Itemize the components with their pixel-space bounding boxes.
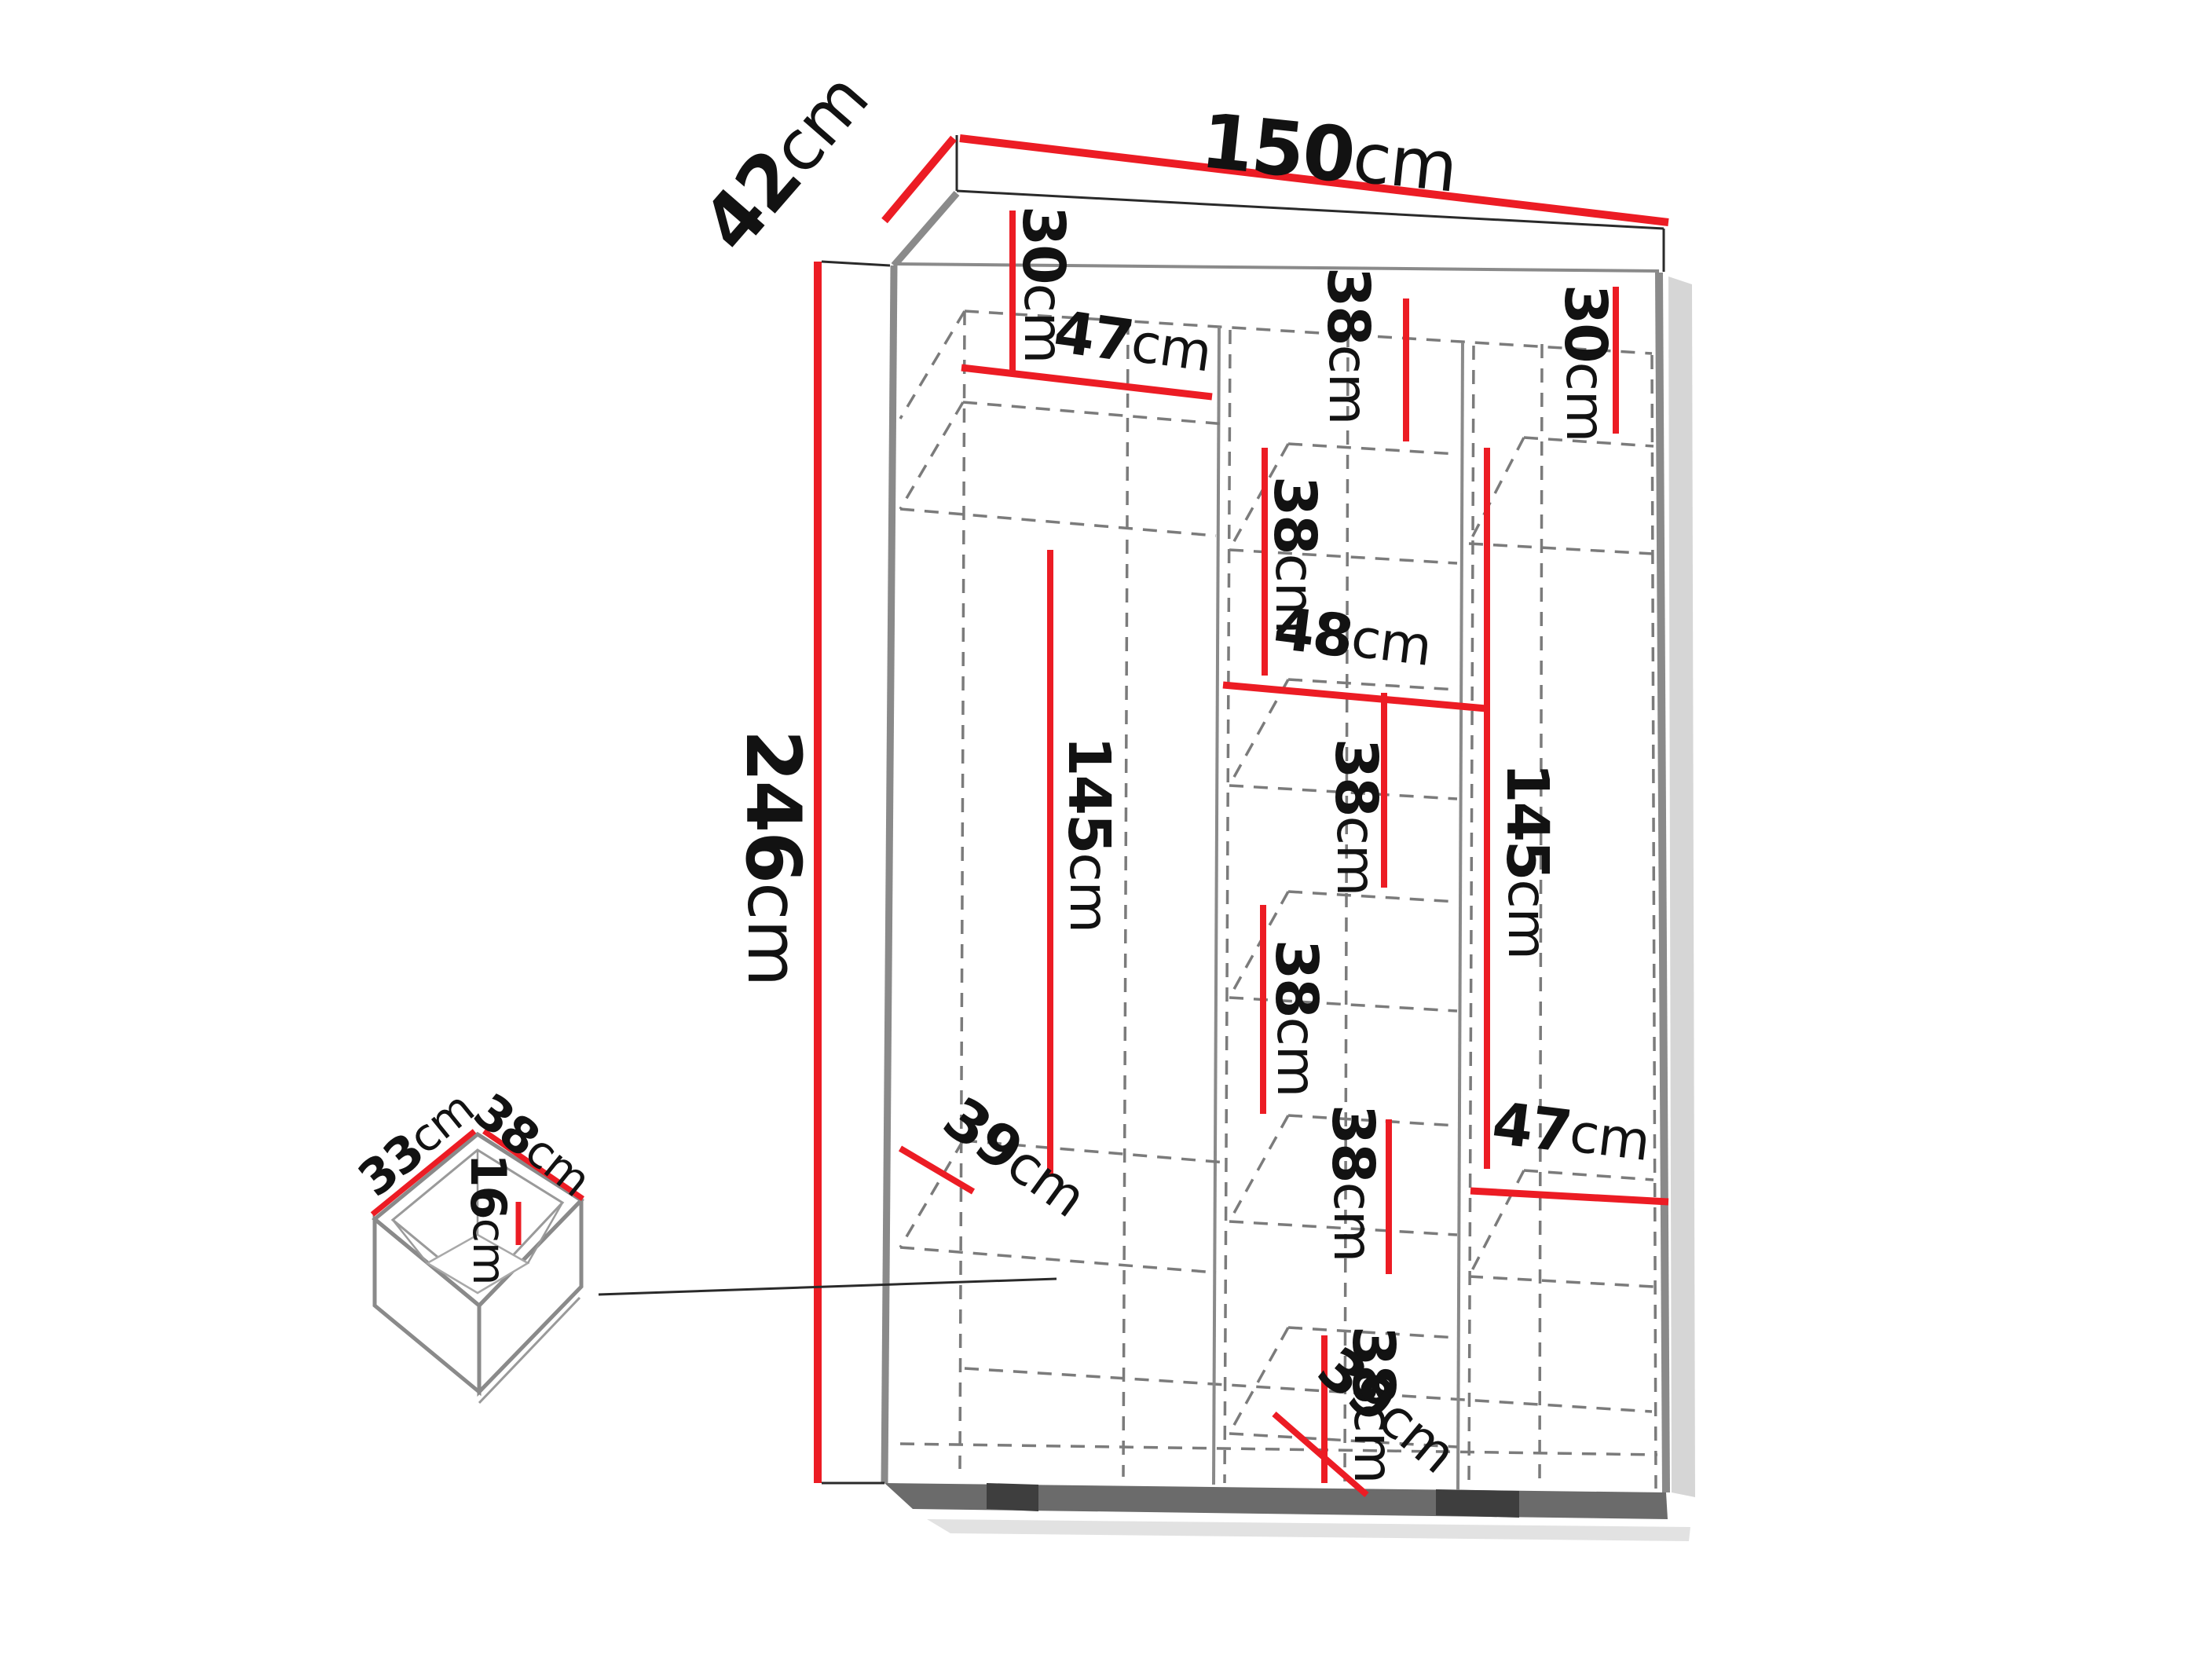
dim-label-mid-38cm-4: 38cm — [1262, 939, 1330, 1097]
wardrobe-dimension-diagram: 150cm 42cm 246cm 30cm 47cm 145cm 39cm 38… — [0, 0, 2212, 1659]
dim-label-mid-38cm-5: 38cm — [1319, 1104, 1386, 1262]
dim-label-mid-38cm-1: 38cm — [1314, 267, 1382, 425]
dim-label-left-145cm: 145cm — [1055, 736, 1122, 932]
dim-label-150cm: 150cm — [1197, 97, 1461, 211]
dim-label-drawer-16cm: 16cm — [460, 1153, 518, 1284]
dim-label-right-30cm: 30cm — [1551, 284, 1619, 442]
dim-label-right-145cm: 145cm — [1493, 763, 1561, 959]
diagram-page: 150cm 42cm 246cm 30cm 47cm 145cm 39cm 38… — [0, 0, 2212, 1659]
dim-label-246cm: 246cm — [729, 730, 817, 987]
dim-label-42cm: 42cm — [685, 56, 886, 269]
dim-label-mid-38cm-3: 38cm — [1322, 738, 1390, 896]
